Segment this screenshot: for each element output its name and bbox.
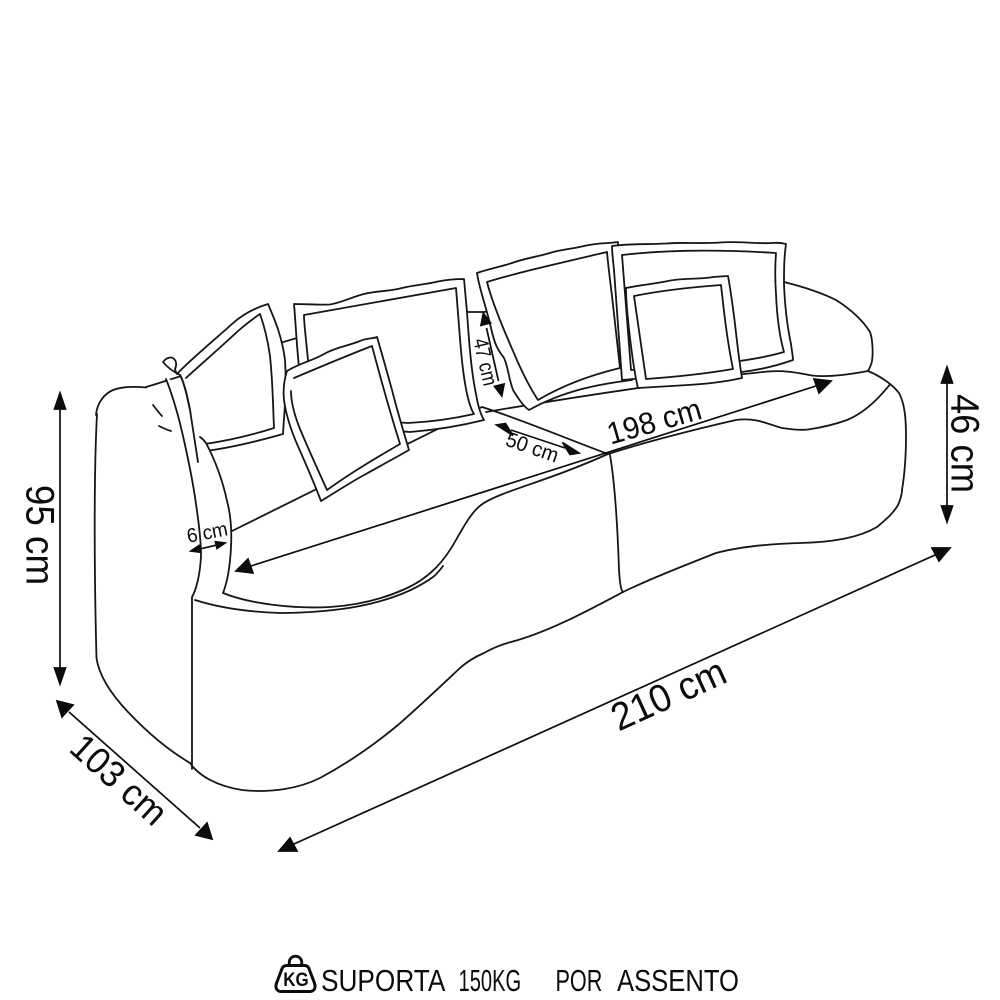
svg-text:95 cm: 95 cm xyxy=(17,485,62,585)
svg-text:SUPORTA: SUPORTA xyxy=(321,964,445,998)
svg-text:150KG: 150KG xyxy=(459,965,522,998)
svg-text:ASSENTO: ASSENTO xyxy=(617,964,739,998)
svg-text:46 cm: 46 cm xyxy=(942,394,987,493)
svg-text:210 cm: 210 cm xyxy=(605,651,733,741)
svg-text:KG: KG xyxy=(283,968,308,990)
svg-text:POR: POR xyxy=(556,963,603,998)
